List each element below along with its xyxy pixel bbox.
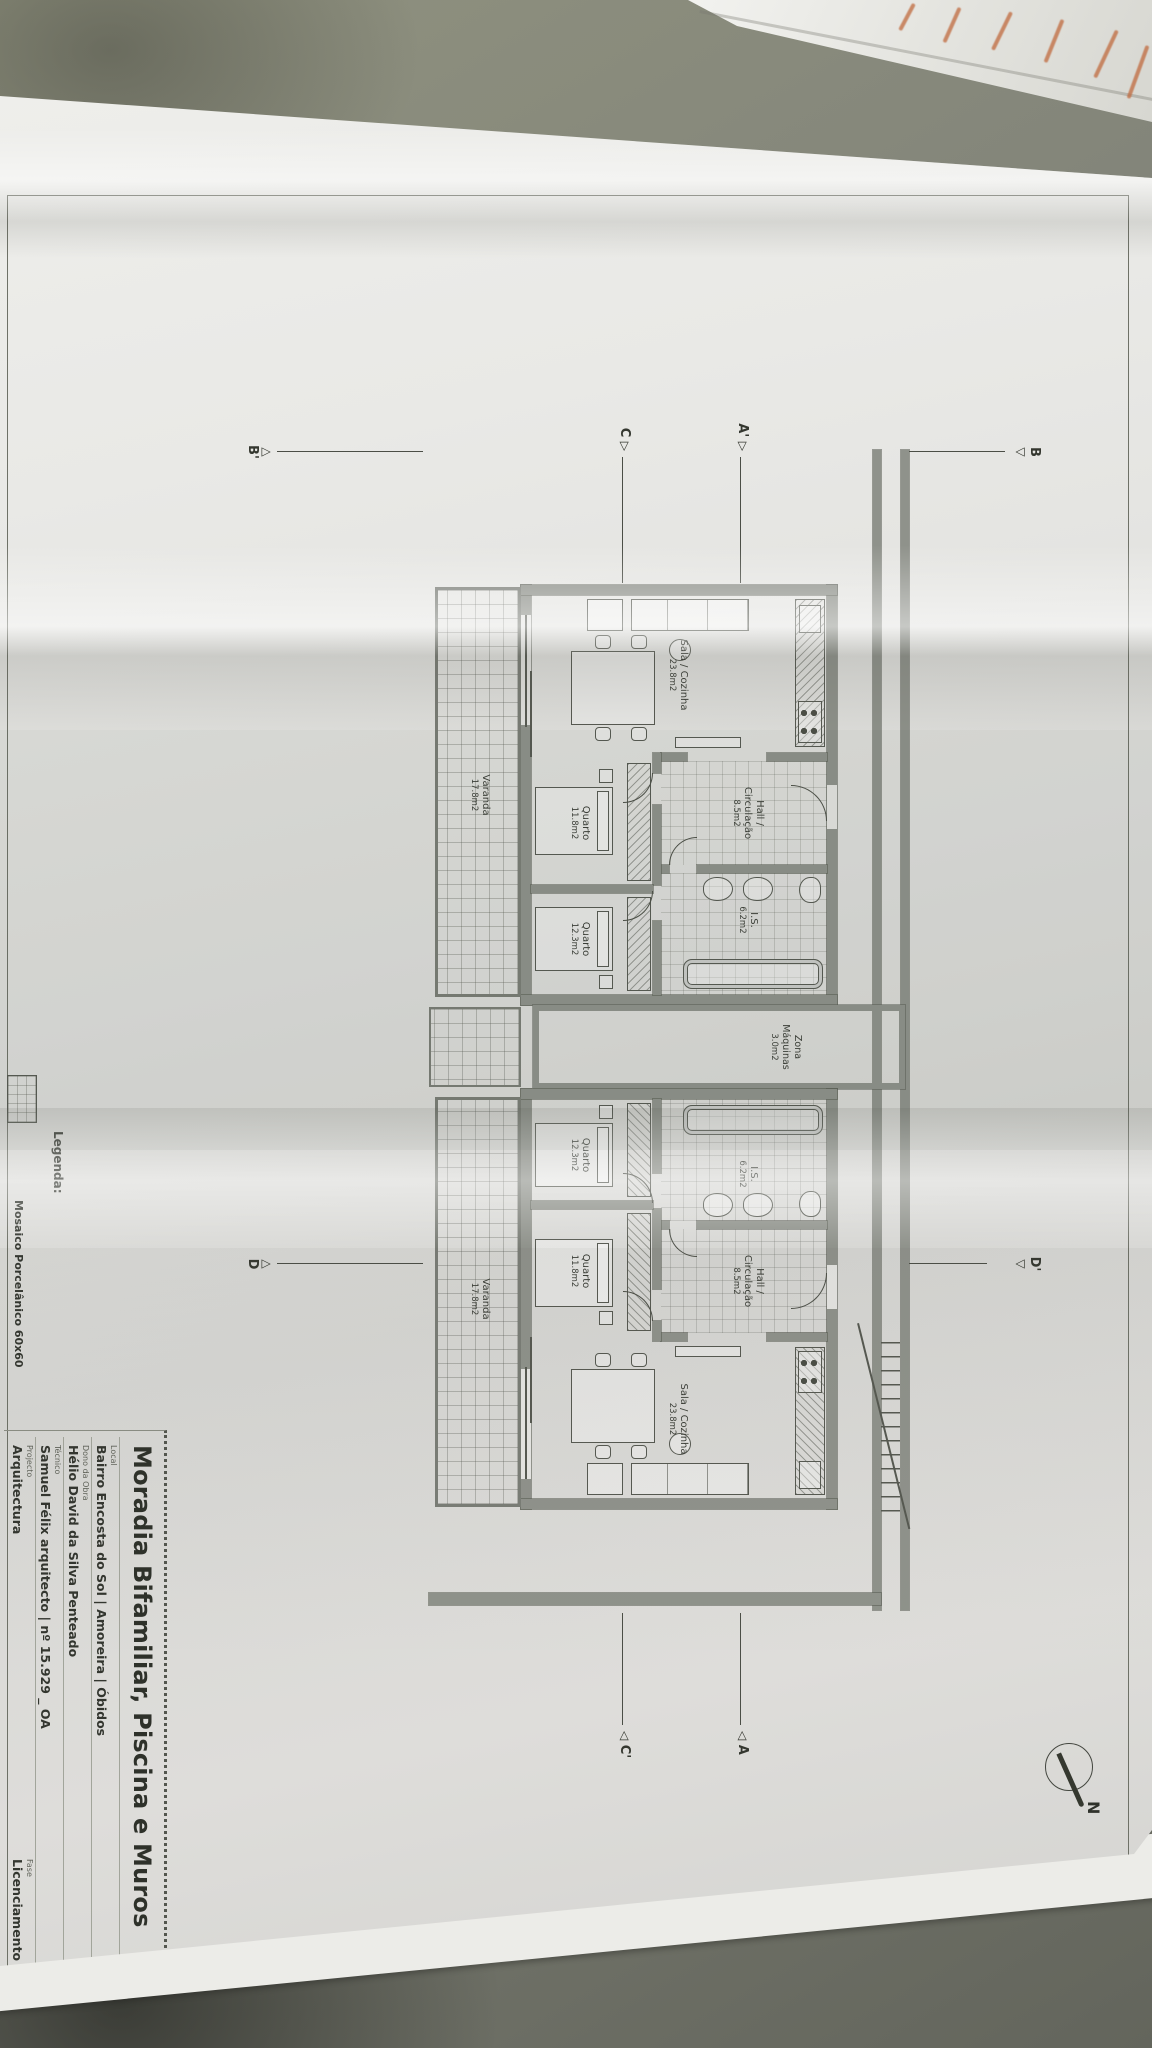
section-line-c [622, 457, 623, 583]
field-dono-da-obra: Dono da Obra Hélio David da Silva Pentea… [64, 1437, 92, 1985]
tv-cabinet [675, 1346, 741, 1357]
legend-item-label: Mosaico Porcelânico 60x60 [12, 1200, 25, 1368]
wall [697, 865, 827, 873]
chair [595, 635, 611, 649]
room-label-quarto2: Quarto 12.3m2 [569, 889, 591, 989]
sofa [631, 1463, 749, 1495]
field-tecnico: Técnico Samuel Félix arquitecto | nº 15.… [36, 1437, 64, 1985]
wall [661, 865, 669, 873]
section-marker-c: C ▷ [617, 393, 631, 451]
kitchen-sink [799, 1461, 821, 1489]
room-label-is: I.S. 6.2m2 [737, 1139, 759, 1209]
section-line-d [277, 1263, 423, 1264]
legend-heading: Legenda: [51, 1131, 65, 1194]
wall [661, 1333, 687, 1341]
triangle-icon: ◁ [618, 1731, 632, 1740]
triangle-icon: ◁ [736, 1731, 750, 1740]
triangle-icon: ▽ [1014, 447, 1028, 456]
chair [631, 1353, 647, 1367]
chair [631, 635, 647, 649]
entrance-opening [827, 1265, 837, 1309]
wall [653, 1209, 661, 1289]
room-label-quarto1: Quarto 11.8m2 [569, 773, 591, 873]
washbasin [799, 1191, 821, 1217]
armchair [587, 599, 623, 631]
section-line-a [740, 457, 741, 583]
bathtub [683, 1105, 823, 1135]
dining-table [571, 1369, 655, 1443]
nightstand [599, 769, 613, 783]
tile-grid-swatch [7, 1075, 37, 1123]
triangle-icon: ▽ [1014, 1259, 1028, 1268]
chair [595, 1445, 611, 1459]
title-block-fields: Local Bairro Encosta do Sol | Amoreira |… [8, 1437, 120, 1985]
room-label-zona-maquinas: Zona Máquinas 3.0m2 [769, 1011, 803, 1083]
stove [798, 701, 822, 743]
nightstand [599, 1105, 613, 1119]
photo-of-floor-plan: N [0, 0, 1152, 2048]
room-label-sala: Sala / Cozinha 23.8m2 [667, 625, 689, 725]
wall [653, 753, 661, 773]
wall [653, 921, 661, 995]
floor-plan: Sala / Cozinha 23.8m2 Hall / Circulação … [0, 195, 1135, 2048]
pillow [597, 1127, 609, 1183]
room-label-is: I.S. 6.2m2 [737, 885, 759, 955]
chair [631, 727, 647, 741]
zona-maquinas-room: Zona Máquinas 3.0m2 [533, 1005, 905, 1089]
wall [521, 995, 837, 1005]
sliding-door-leaf [526, 615, 528, 727]
field-local: Local Bairro Encosta do Sol | Amoreira |… [92, 1437, 120, 1985]
pillow [597, 791, 609, 851]
section-marker-c-prime: ◁ C' [617, 1731, 631, 1789]
section-line-c [622, 1613, 623, 1725]
wall [653, 1099, 661, 1173]
unit-right: Sala / Cozinha 23.8m2 Hall / Circulação … [425, 1089, 837, 1509]
section-line-a [740, 1613, 741, 1725]
wall [521, 585, 837, 595]
room-label-sala: Sala / Cozinha 23.8m2 [667, 1369, 689, 1469]
wall [697, 1221, 827, 1229]
stove [798, 1351, 822, 1393]
section-line-d [909, 1263, 987, 1264]
wall [521, 1499, 837, 1509]
triangle-icon: △ [260, 447, 274, 456]
varanda-middle-section [429, 1007, 521, 1087]
title-block: Moradia Bifamiliar, Piscina e Muros Loca… [4, 1430, 167, 1989]
room-label-quarto2: Quarto 12.3m2 [569, 1105, 591, 1205]
kitchen-sink [799, 605, 821, 633]
bidet [703, 877, 733, 901]
chair [595, 727, 611, 741]
room-label-varanda: Varanda 17.8m2 [469, 735, 491, 855]
section-marker-d-prime: D'▽ [1014, 1247, 1041, 1281]
armchair [587, 1463, 623, 1495]
section-marker-a: ◁ A [735, 1731, 749, 1789]
field-projecto-fase: Projecto Arquitectura Fase Licenciamento [8, 1437, 36, 1985]
wall [767, 1333, 827, 1341]
section-marker-b-prime: △B' [246, 435, 273, 469]
wall [653, 1321, 661, 1341]
field-projecto: Projecto Arquitectura [10, 1445, 34, 1534]
project-title: Moradia Bifamiliar, Piscina e Muros [128, 1445, 156, 1928]
triangle-icon: ▷ [618, 442, 632, 451]
chair [595, 1353, 611, 1367]
bathtub [683, 959, 823, 989]
entrance-opening [827, 785, 837, 829]
chair [631, 1445, 647, 1459]
sliding-door-leaf [531, 671, 533, 757]
architectural-drawing: N [0, 195, 1135, 2048]
section-marker-a-prime: A' ▷ [735, 393, 749, 451]
field-fase: Fase Licenciamento [10, 1859, 34, 1977]
room-label-quarto1: Quarto 11.8m2 [569, 1221, 591, 1321]
nightstand [599, 1311, 613, 1325]
section-line-b [277, 451, 423, 452]
plan-sheet: N [0, 0, 1152, 2048]
sliding-door-leaf [526, 1367, 528, 1479]
wall [661, 1221, 669, 1229]
room-label-hall: Hall / Circulação 8.5m2 [731, 1243, 765, 1319]
bidet [703, 1193, 733, 1217]
section-marker-b: B▽ [1014, 435, 1041, 469]
washbasin [799, 877, 821, 903]
tv-cabinet [675, 737, 741, 748]
pillow [597, 911, 609, 967]
room-label-hall: Hall / Circulação 8.5m2 [731, 775, 765, 851]
wall [521, 1089, 837, 1099]
section-marker-d: △D [246, 1247, 273, 1281]
section-line-b [909, 451, 1005, 452]
room-label-varanda: Varanda 17.8m2 [469, 1239, 491, 1359]
nightstand [599, 975, 613, 989]
wall [767, 753, 827, 761]
wall [653, 805, 661, 885]
pillow [597, 1243, 609, 1303]
dining-table [571, 651, 655, 725]
unit-left: Sala / Cozinha 23.8m2 Hall / Circulação … [425, 585, 837, 1005]
wall [661, 753, 687, 761]
sofa [631, 599, 749, 631]
triangle-icon: △ [260, 1259, 274, 1268]
triangle-icon: ▷ [736, 442, 750, 451]
sliding-door-leaf [531, 1337, 533, 1423]
